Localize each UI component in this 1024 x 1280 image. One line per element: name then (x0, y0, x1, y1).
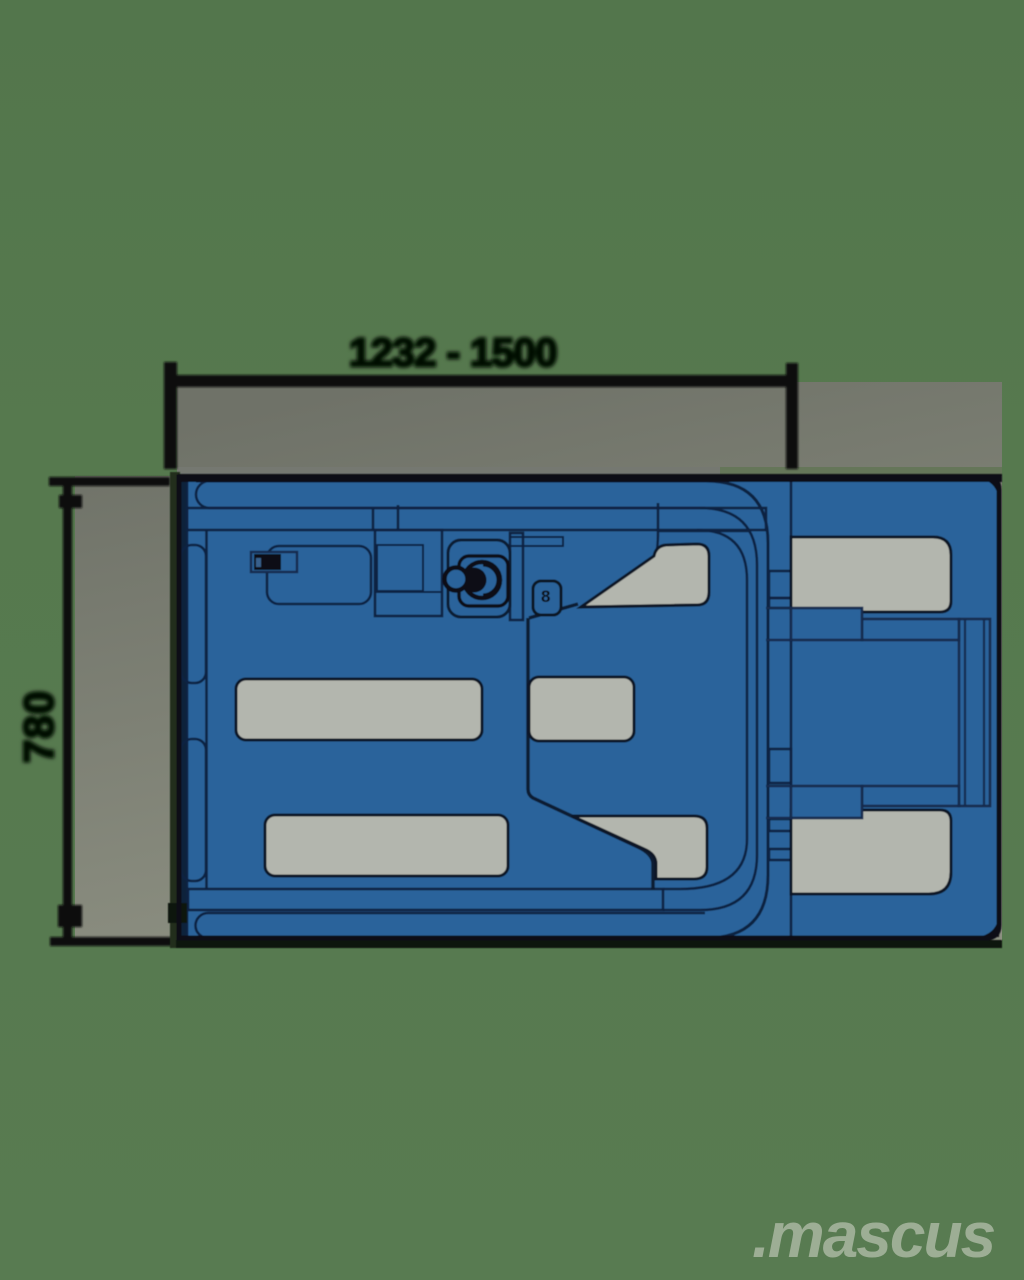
svg-text:8: 8 (541, 587, 550, 606)
svg-text:1232 - 1500: 1232 - 1500 (349, 331, 557, 375)
svg-text:.mascus: .mascus (752, 1199, 995, 1271)
svg-text:780: 780 (15, 690, 62, 763)
